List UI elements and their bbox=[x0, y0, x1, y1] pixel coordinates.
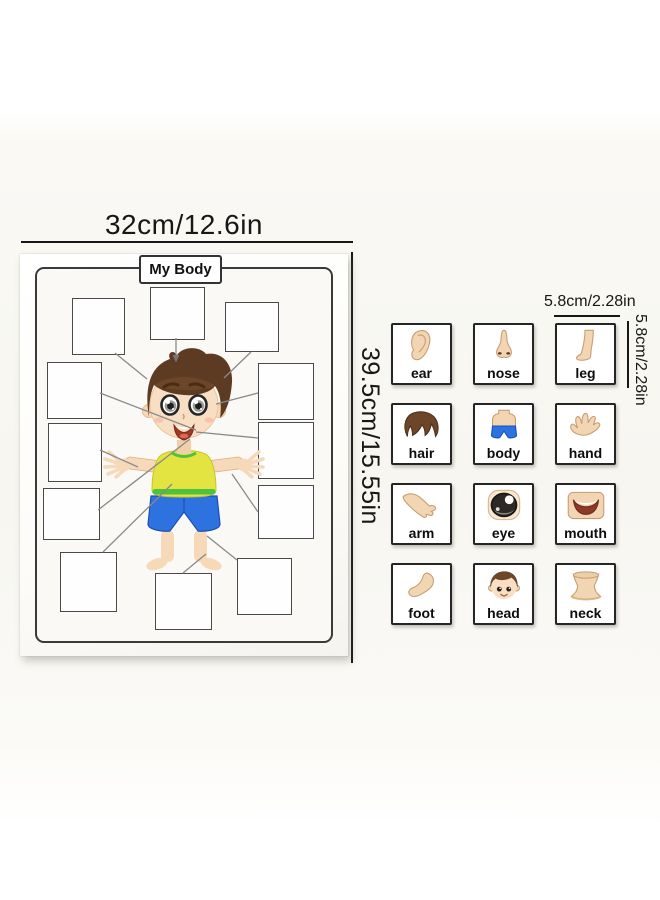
hair-icon bbox=[399, 408, 445, 444]
poster-height-dimension-line bbox=[351, 252, 353, 663]
flashcard-label: mouth bbox=[564, 526, 607, 540]
flashcard-label: body bbox=[487, 446, 520, 460]
card-width-dimension-line bbox=[554, 315, 620, 317]
answer-slot-top-left bbox=[72, 298, 125, 355]
flashcard-label: head bbox=[487, 606, 520, 620]
flashcard-label: nose bbox=[487, 366, 520, 380]
poster-width-dimension-line bbox=[21, 241, 353, 243]
flashcard-arm: arm bbox=[391, 483, 452, 545]
flashcard-body: body bbox=[473, 403, 534, 465]
flashcard-ear: ear bbox=[391, 323, 452, 385]
head-icon bbox=[481, 568, 527, 604]
card-height-dimension-line bbox=[627, 321, 629, 388]
answer-slot-bottom-right bbox=[237, 558, 292, 615]
leg-icon bbox=[563, 328, 609, 364]
answer-slot-top-right bbox=[225, 302, 279, 352]
foot-icon bbox=[399, 568, 445, 604]
neck-icon bbox=[563, 568, 609, 604]
flashcard-eye: eye bbox=[473, 483, 534, 545]
poster-height-dimension: 39.5cm/15.55in bbox=[355, 347, 384, 525]
my-body-poster: My Body bbox=[20, 254, 348, 656]
flashcard-hand: hand bbox=[555, 403, 616, 465]
flashcard-label: ear bbox=[411, 366, 432, 380]
nose-icon bbox=[481, 328, 527, 364]
mouth-icon bbox=[563, 488, 609, 524]
flashcard-label: hand bbox=[569, 446, 602, 460]
answer-slot-left-3 bbox=[43, 488, 100, 540]
answer-slot-right-2 bbox=[258, 422, 314, 479]
poster-title: My Body bbox=[139, 255, 222, 284]
card-height-dimension: 5.8cm/2.28in bbox=[631, 314, 649, 406]
flashcard-label: hair bbox=[409, 446, 435, 460]
answer-slot-left-2 bbox=[48, 423, 102, 482]
flashcard-label: neck bbox=[570, 606, 602, 620]
arm-icon bbox=[399, 488, 445, 524]
hand-icon bbox=[563, 408, 609, 444]
poster-title-text: My Body bbox=[149, 261, 212, 278]
ear-icon bbox=[399, 328, 445, 364]
flashcard-head: head bbox=[473, 563, 534, 625]
flashcard-label: eye bbox=[492, 526, 515, 540]
answer-slot-right-3 bbox=[258, 485, 314, 539]
answer-slot-left-1 bbox=[47, 362, 102, 419]
flashcard-leg: leg bbox=[555, 323, 616, 385]
answer-slot-bottom-left bbox=[60, 552, 117, 612]
answer-slot-bottom-center bbox=[155, 573, 212, 630]
card-width-dimension: 5.8cm/2.28in bbox=[544, 293, 636, 311]
flashcard-label: arm bbox=[409, 526, 435, 540]
flashcard-hair: hair bbox=[391, 403, 452, 465]
eye-icon bbox=[481, 488, 527, 524]
answer-slot-right-1 bbox=[258, 363, 314, 420]
answer-slot-top-center bbox=[150, 287, 205, 340]
flashcard-nose: nose bbox=[473, 323, 534, 385]
body-icon bbox=[481, 408, 527, 444]
flashcards-grid: ear nose leg hair bbox=[391, 323, 616, 625]
product-photo: 32cm/12.6in 39.5cm/15.55in My Body bbox=[0, 0, 660, 900]
poster-width-dimension: 32cm/12.6in bbox=[20, 209, 348, 241]
flashcard-foot: foot bbox=[391, 563, 452, 625]
flashcard-mouth: mouth bbox=[555, 483, 616, 545]
flashcard-label: leg bbox=[575, 366, 595, 380]
flashcard-label: foot bbox=[408, 606, 434, 620]
flashcard-neck: neck bbox=[555, 563, 616, 625]
